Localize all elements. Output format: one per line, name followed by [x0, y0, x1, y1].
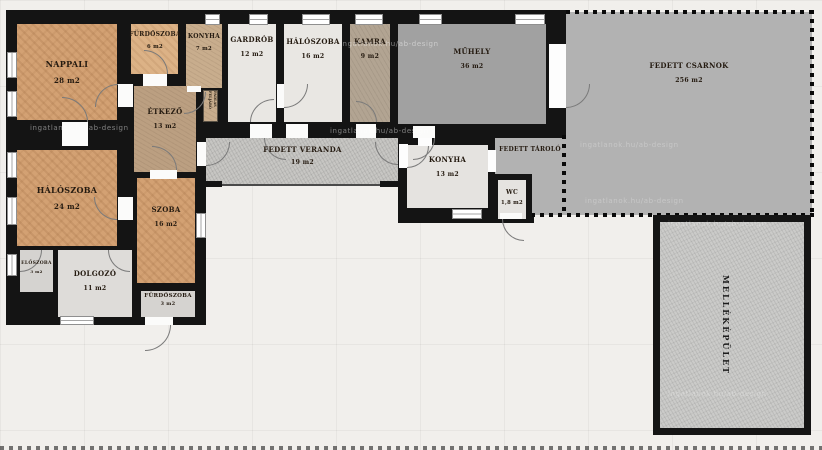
door-opening: [277, 84, 284, 108]
door-opening: [250, 124, 272, 138]
room-label-muhely: MŰHELY36 m2: [398, 48, 546, 70]
room-label-kamra: KAMRA9 m2: [348, 38, 392, 60]
door-arc: [502, 219, 524, 241]
window-icon: [7, 91, 17, 117]
door-opening: [549, 44, 566, 108]
door-opening: [413, 126, 435, 138]
door-opening: [197, 142, 206, 166]
room-label-fedett-tarolo: FEDETT TÁROLÓ: [491, 147, 569, 154]
door-opening: [118, 84, 133, 107]
door-opening: [143, 74, 167, 86]
room-label-furdoszoba-6: FÜRDŐSZOBA6 m2: [128, 32, 182, 50]
window-icon: [7, 152, 17, 178]
room-label-haloszoba-16: HÁLÓSZOBA16 m2: [282, 38, 344, 60]
door-opening: [62, 122, 88, 146]
room-label-fedett-veranda: FEDETT VERANDA19 m2: [210, 146, 395, 166]
floorplan-canvas: NAPPALI28 m2 FÜRDŐSZOBA6 m2 KONYHA7 m2 G…: [0, 0, 822, 450]
window-icon: [355, 14, 383, 25]
room-label-mellekepulet: MELLÉKÉPÜLET: [718, 222, 734, 428]
room-label-szoba: SZOBA16 m2: [137, 206, 195, 228]
room-label-gardrob: GARDRÓB12 m2: [226, 36, 278, 58]
room-label-haloszoba-24: HÁLÓSZOBA24 m2: [17, 186, 117, 211]
window-icon: [515, 14, 545, 25]
veranda-edge-cap-left: [206, 181, 222, 187]
room-label-wc: WC1,8 m2: [496, 190, 528, 206]
window-icon: [7, 197, 17, 225]
door-opening: [145, 317, 173, 325]
room-label-konyha-7: KONYHA7 m2: [182, 34, 226, 52]
room-label-eloszoba: ELŐSZOBA3 m2: [19, 262, 54, 274]
window-icon: [7, 254, 17, 276]
dotted-boundary-top: [566, 10, 814, 14]
room-fedett-csarnok: [566, 12, 812, 215]
window-icon: [205, 14, 220, 25]
room-label-nappali: NAPPALI28 m2: [17, 60, 117, 85]
window-icon: [419, 14, 442, 25]
veranda-edge-line: [206, 184, 398, 186]
window-icon: [302, 14, 330, 25]
dotted-boundary-right: [810, 10, 814, 217]
room-label-fedett-csarnok: FEDETT CSARNOK256 m2: [566, 62, 812, 84]
room-label-furdoszoba-3: FÜRDŐSZOBA3 m2: [139, 293, 197, 307]
room-label-dolgozo: DOLGOZÓ11 m2: [58, 270, 132, 292]
window-icon: [452, 209, 482, 219]
room-label-konyha-13: KONYHA13 m2: [407, 156, 488, 178]
room-label-etkezo: ÉTKEZŐ13 m2: [134, 108, 196, 130]
door-opening: [118, 197, 133, 220]
window-icon: [196, 213, 206, 238]
room-muhely: [398, 24, 546, 124]
door-opening: [150, 170, 177, 179]
room-szoba: [137, 178, 195, 283]
window-icon: [249, 14, 268, 25]
door-opening: [286, 124, 308, 138]
door-arc: [145, 325, 171, 351]
window-icon: [7, 52, 17, 78]
door-opening: [356, 124, 376, 138]
veranda-edge-cap-right: [380, 181, 398, 187]
bottom-edge-dashes: [0, 446, 822, 450]
attic-stair-label: PADLÁS FELJÁRÓ: [204, 91, 217, 121]
window-icon: [60, 316, 94, 325]
